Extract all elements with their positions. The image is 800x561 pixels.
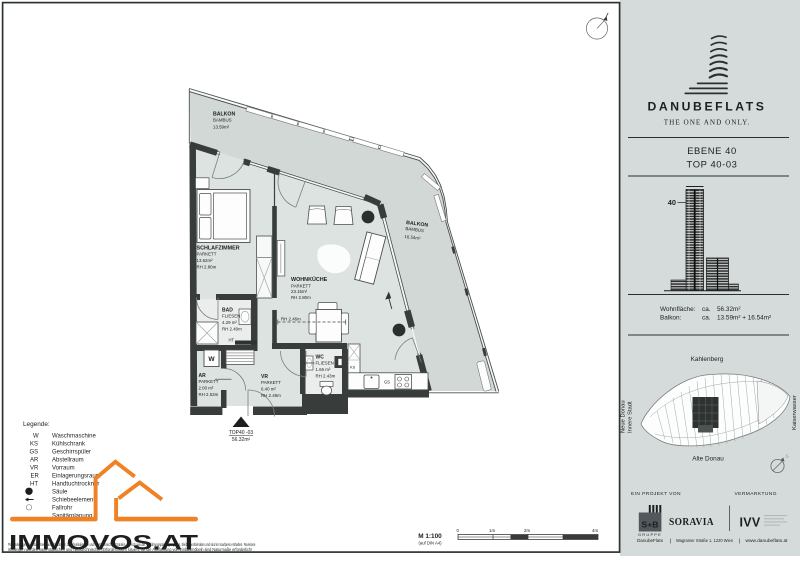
svg-text:RH 2.49m: RH 2.49m [261, 393, 281, 398]
svg-text:FLIESEN: FLIESEN [316, 361, 334, 366]
svg-text:RH 2.80m: RH 2.80m [197, 265, 217, 270]
svg-text:4m: 4m [592, 528, 598, 533]
svg-text:2.00 m²: 2.00 m² [199, 386, 214, 391]
svg-text:Waschmaschine: Waschmaschine [52, 434, 96, 440]
svg-text:VERMARKTUNG: VERMARKTUNG [735, 491, 777, 497]
svg-text:Neue Donau: Neue Donau [621, 400, 627, 433]
svg-text:AR: AR [30, 458, 39, 464]
svg-text:56.32m²: 56.32m² [232, 437, 251, 443]
svg-text:RH 2.40m: RH 2.40m [222, 327, 242, 332]
svg-text:SORAVIA: SORAVIA [669, 517, 714, 528]
svg-text:Kahlenberg: Kahlenberg [691, 356, 724, 363]
svg-text:W: W [208, 356, 215, 363]
svg-text:PARKETT: PARKETT [199, 379, 219, 384]
svg-text:DANUBEFLATS: DANUBEFLATS [647, 100, 766, 114]
svg-text:Geschirrspüler: Geschirrspüler [52, 450, 91, 456]
svg-text:Wagramer Straße 1, 1220 Wien: Wagramer Straße 1, 1220 Wien [676, 538, 734, 543]
svg-text:DanubeFlats: DanubeFlats [637, 538, 664, 543]
svg-text:Fallrohr: Fallrohr [52, 506, 72, 512]
svg-text:4.29 m²: 4.29 m² [222, 320, 237, 325]
svg-text:FLIESEN: FLIESEN [222, 314, 240, 319]
svg-text:Balkon:: Balkon: [660, 315, 682, 322]
svg-text:13.59m² + 16.54m²: 13.59m² + 16.54m² [717, 315, 771, 322]
svg-text:ca.: ca. [702, 306, 711, 313]
svg-text:|: | [670, 539, 671, 545]
svg-text:Wohnfläche:: Wohnfläche: [660, 306, 696, 313]
svg-text:13.62m²: 13.62m² [197, 258, 214, 263]
svg-text:PARKETT: PARKETT [197, 252, 217, 257]
svg-text:GS: GS [30, 450, 39, 456]
svg-text:|: | [739, 539, 740, 545]
svg-text:ca.: ca. [702, 315, 711, 322]
svg-text:HT: HT [30, 482, 38, 488]
svg-text:S+B: S+B [642, 520, 659, 530]
svg-text:40: 40 [668, 198, 676, 207]
svg-text:RH 2.43m: RH 2.43m [316, 374, 336, 379]
svg-text:öffnungen werden nach statisch: öffnungen werden nach statischen und hau… [8, 547, 252, 552]
svg-text:GRUPPE: GRUPPE [638, 532, 662, 537]
svg-text:Einlagerungsraum: Einlagerungsraum [52, 474, 101, 480]
svg-text:WOHNKÜCHE: WOHNKÜCHE [291, 276, 328, 283]
svg-text:Kühlschrank: Kühlschrank [52, 442, 86, 448]
svg-text:RH 2.80m: RH 2.80m [291, 295, 311, 300]
svg-text:Innere Stadt: Innere Stadt [628, 401, 634, 433]
svg-text:IVV: IVV [740, 516, 761, 530]
svg-text:6.40 m²: 6.40 m² [261, 387, 276, 392]
svg-text:1m: 1m [489, 528, 495, 533]
svg-text:1.66 m²: 1.66 m² [316, 367, 331, 372]
svg-text:2m: 2m [524, 528, 530, 533]
svg-text:Vorraum: Vorraum [52, 466, 75, 472]
svg-text:EIN PROJEKT VON: EIN PROJEKT VON [631, 491, 681, 497]
svg-text:TOP 40-03: TOP 40-03 [687, 159, 738, 170]
svg-text:TOP40 -03: TOP40 -03 [229, 430, 254, 436]
svg-text:RH 2.46m: RH 2.46m [281, 317, 301, 322]
svg-text:Säule: Säule [52, 490, 68, 496]
svg-text:13.59m²: 13.59m² [213, 125, 230, 130]
svg-text:Kaiserwasser: Kaiserwasser [792, 395, 798, 430]
svg-text:ER: ER [31, 474, 40, 480]
svg-text:Schiebeelement: Schiebeelement [52, 498, 95, 504]
svg-text:www.danubeflats.at: www.danubeflats.at [746, 538, 789, 543]
svg-text:THE ONE AND ONLY.: THE ONE AND ONLY. [664, 119, 750, 127]
svg-text:PARKETT: PARKETT [261, 380, 281, 385]
svg-text:(auf DIN A4): (auf DIN A4) [418, 541, 442, 546]
svg-text:M 1:100: M 1:100 [418, 533, 442, 540]
svg-text:56.32m²: 56.32m² [717, 306, 740, 313]
svg-text:Abstellraum: Abstellraum [52, 458, 84, 464]
svg-text:Handtuchtrockner: Handtuchtrockner [52, 482, 99, 488]
svg-text:PARKETT: PARKETT [291, 284, 311, 289]
svg-text:GS: GS [384, 380, 390, 385]
svg-text:KS: KS [30, 442, 38, 448]
svg-text:Legende:: Legende: [23, 421, 50, 428]
svg-text:23.15m²: 23.15m² [291, 289, 308, 294]
svg-text:HT: HT [229, 337, 235, 342]
svg-text:RH 2.53m: RH 2.53m [199, 392, 219, 397]
svg-text:VR: VR [30, 466, 39, 472]
svg-text:EBENE 40: EBENE 40 [687, 145, 737, 156]
svg-text:W: W [33, 434, 39, 440]
svg-text:BAMBUS: BAMBUS [213, 118, 232, 123]
svg-text:Alte Donau: Alte Donau [692, 456, 724, 463]
svg-text:KS: KS [350, 365, 356, 370]
